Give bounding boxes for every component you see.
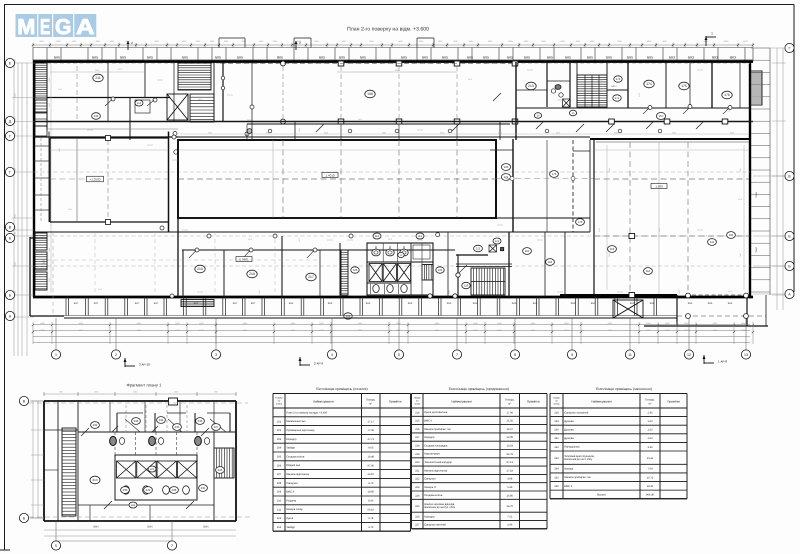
svg-text:2370: 2370: [258, 290, 261, 294]
svg-text:118: 118: [375, 235, 380, 238]
svg-text:3 АР-10: 3 АР-10: [139, 363, 150, 367]
svg-text:Номер: Номер: [553, 397, 561, 400]
svg-text:Експлікація приміщень (продовж: Експлікація приміщень (продовження): [449, 387, 509, 391]
svg-text:229: 229: [146, 488, 151, 492]
svg-text:14.67: 14.67: [507, 428, 514, 431]
svg-text:216: 216: [415, 428, 420, 431]
svg-text:2370: 2370: [728, 290, 732, 293]
svg-text:2370: 2370: [68, 208, 72, 211]
svg-text:8Н7: 8Н7: [74, 302, 79, 305]
svg-text:226: 226: [415, 515, 420, 518]
svg-text:2 АР-9: 2 АР-9: [314, 362, 324, 366]
svg-text:120: 120: [504, 165, 509, 169]
svg-text:210: 210: [197, 267, 203, 271]
svg-text:214: 214: [415, 411, 420, 414]
svg-text:5: 5: [55, 544, 57, 548]
svg-text:Всього: Всього: [597, 494, 606, 497]
svg-text:172: 172: [616, 77, 621, 81]
svg-text:8Н7: 8Н7: [233, 302, 238, 305]
svg-text:212: 212: [277, 517, 282, 520]
svg-text:119: 119: [418, 235, 423, 238]
svg-text:227: 227: [214, 425, 219, 429]
svg-text:157: 157: [658, 114, 663, 118]
svg-text:7: 7: [456, 353, 458, 357]
svg-text:234: 234: [554, 468, 559, 471]
svg-text:2370: 2370: [728, 108, 731, 112]
svg-text:6000: 6000: [14, 214, 17, 218]
svg-text:плану: плану: [554, 403, 561, 406]
svg-text:7.04: 7.04: [647, 468, 653, 471]
svg-text:м²: м²: [508, 402, 511, 405]
svg-text:2370: 2370: [58, 88, 62, 91]
svg-text:221: 221: [415, 469, 420, 472]
svg-text:3.96: 3.96: [507, 524, 513, 527]
svg-text:Найменування: Найменування: [591, 399, 612, 403]
svg-text:19.85: 19.85: [368, 491, 375, 494]
svg-text:8.95: 8.95: [368, 500, 374, 503]
svg-text:11: 11: [628, 353, 632, 357]
svg-text:1: 1: [711, 32, 713, 36]
svg-text:966.46: 966.46: [646, 494, 654, 497]
svg-text:Санвузол: Санвузол: [286, 482, 298, 485]
svg-text:213: 213: [528, 84, 534, 88]
svg-text:безпечних до наступ. обігу: безпечних до наступ. обігу: [424, 506, 456, 509]
svg-text:Г: Г: [789, 46, 791, 50]
svg-text:БК5: БК5: [442, 56, 448, 60]
svg-text:2370: 2370: [638, 93, 641, 97]
svg-text:E: E: [40, 15, 50, 39]
svg-text:Кімната прибирал. інв: Кімната прибирал. інв: [564, 476, 591, 479]
svg-text:235: 235: [554, 476, 559, 479]
svg-text:16.80: 16.80: [507, 494, 514, 497]
svg-text:174: 174: [646, 82, 652, 86]
svg-text:27.17: 27.17: [368, 420, 375, 423]
svg-text:27.72: 27.72: [368, 438, 375, 441]
svg-text:БК5: БК5: [54, 56, 60, 60]
svg-text:232: 232: [554, 446, 559, 449]
svg-text:27.18: 27.18: [507, 469, 514, 472]
svg-text:Душова: Душова: [564, 437, 574, 440]
svg-text:97.13: 97.13: [507, 461, 514, 464]
svg-text:Г: Г: [9, 134, 11, 138]
svg-text:115: 115: [525, 249, 530, 253]
svg-text:12.08: 12.08: [507, 436, 514, 439]
svg-text:Комора схову: Комора схову: [286, 508, 303, 511]
svg-text:План 2-го поверху на відм. +3.: План 2-го поверху на відм. +3.600: [347, 27, 429, 33]
svg-text:Накопичувач: Накопичувач: [424, 453, 440, 456]
svg-text:8Н3: 8Н3: [512, 302, 517, 305]
svg-text:ВК6: ВК6: [277, 56, 283, 60]
svg-text:Коридор: Коридор: [424, 436, 435, 439]
svg-text:ВМС 8: ВМС 8: [286, 491, 294, 494]
svg-text:6000: 6000: [324, 131, 328, 134]
svg-text:210: 210: [94, 114, 99, 118]
svg-text:БК5: БК5: [92, 56, 98, 60]
svg-text:Комора ІТ: Комора ІТ: [424, 486, 437, 489]
svg-text:8Н7: 8Н7: [94, 302, 99, 305]
svg-text:10.72: 10.72: [647, 476, 654, 479]
svg-text:БК5: БК5: [360, 56, 366, 60]
svg-text:БК5: БК5: [467, 56, 473, 60]
svg-text:12: 12: [687, 353, 691, 357]
svg-text:97.06: 97.06: [368, 464, 375, 467]
svg-text:224: 224: [131, 504, 136, 507]
svg-text:Тамбур: Тамбур: [286, 447, 295, 450]
svg-text:4: 4: [331, 353, 333, 357]
svg-text:227: 227: [415, 524, 420, 527]
svg-text:Площа,: Площа,: [645, 398, 654, 401]
svg-text:м²: м²: [649, 402, 652, 405]
svg-text:Номер: Номер: [276, 397, 284, 400]
svg-text:Сходова площадка: Сходова площадка: [424, 444, 448, 447]
svg-text:233: 233: [134, 419, 139, 423]
svg-text:207: 207: [277, 473, 282, 476]
svg-text:225: 225: [415, 505, 420, 508]
svg-text:2370: 2370: [598, 228, 601, 232]
svg-text:13.63: 13.63: [507, 444, 514, 447]
svg-text:113: 113: [610, 247, 615, 251]
svg-text:17.06: 17.06: [507, 411, 514, 414]
svg-text:236: 236: [198, 419, 203, 423]
svg-text:3: 3: [215, 353, 217, 357]
svg-text:Приміщення персоналу: Приміщення персоналу: [286, 429, 315, 432]
svg-text:Передушова: Передушова: [564, 446, 580, 449]
svg-text:8Н6: 8Н6: [708, 302, 713, 305]
svg-text:22.10: 22.10: [368, 473, 375, 476]
svg-text:8Н6: 8Н6: [366, 302, 371, 305]
svg-text:173: 173: [552, 172, 557, 176]
svg-text:8: 8: [514, 353, 516, 357]
svg-text:БК5: БК5: [627, 56, 633, 60]
svg-text:+1.3500: +1.3500: [90, 177, 101, 181]
svg-text:4.98: 4.98: [507, 478, 513, 481]
svg-text:Сходова клітка: Сходова клітка: [286, 455, 305, 458]
svg-text:92.79: 92.79: [507, 453, 514, 456]
svg-text:G: G: [55, 15, 71, 39]
svg-text:2370: 2370: [448, 290, 451, 294]
svg-text:8Н3: 8Н3: [571, 302, 576, 305]
svg-text:Примітки: Примітки: [527, 399, 540, 403]
svg-text:8Н7: 8Н7: [154, 302, 159, 305]
svg-text:126: 126: [464, 284, 469, 288]
svg-text:205: 205: [277, 456, 282, 459]
svg-text:Роздяча: Роздяча: [286, 499, 296, 502]
svg-text:6000: 6000: [14, 93, 17, 97]
svg-text:3.76: 3.76: [368, 526, 374, 529]
svg-text:226: 226: [218, 468, 223, 472]
svg-text:8Н3: 8Н3: [289, 302, 294, 305]
svg-text:Б.0601: Б.0601: [239, 257, 249, 261]
svg-text:БК5: БК5: [483, 56, 489, 60]
svg-text:ВМС 6: ВМС 6: [424, 419, 432, 422]
svg-text:111: 111: [710, 240, 715, 244]
svg-text:Обідній зал: Обідній зал: [286, 464, 300, 467]
svg-text:ВМС 3: ВМС 3: [564, 485, 572, 488]
svg-text:БК5: БК5: [547, 56, 553, 60]
svg-text:Душова: Душова: [564, 420, 574, 423]
svg-text:236: 236: [554, 485, 559, 488]
svg-text:План 2-го поверху на відм. +3.: План 2-го поверху на відм. +3.600: [286, 411, 328, 414]
svg-text:4.70: 4.70: [368, 482, 374, 485]
svg-text:1: 1: [55, 353, 57, 357]
svg-text:2370: 2370: [738, 198, 742, 201]
svg-text:2370: 2370: [58, 148, 61, 152]
svg-text:231: 231: [554, 437, 559, 440]
svg-text:222: 222: [415, 478, 420, 481]
svg-text:230: 230: [554, 429, 559, 432]
svg-text:7: 7: [171, 544, 173, 548]
svg-text:Санвузол жіночий: Санвузол жіночий: [424, 524, 446, 527]
svg-text:БК5: БК5: [339, 56, 345, 60]
svg-text:5: 5: [398, 353, 400, 357]
svg-text:8Н3: 8Н3: [630, 302, 635, 305]
svg-text:213: 213: [92, 478, 97, 482]
svg-text:7.02: 7.02: [507, 515, 513, 518]
svg-text:2370: 2370: [198, 98, 202, 101]
svg-text:6000: 6000: [672, 131, 676, 134]
svg-text:233: 233: [554, 457, 559, 460]
svg-text:Примітки: Примітки: [389, 399, 402, 403]
svg-text:Коридор: Коридор: [286, 438, 297, 441]
svg-text:116: 116: [548, 260, 553, 264]
svg-text:2370: 2370: [678, 290, 681, 294]
svg-text:1500: 1500: [48, 103, 51, 107]
svg-text:2370: 2370: [388, 238, 392, 241]
svg-text:Г: Г: [9, 170, 11, 174]
svg-text:БК5: БК5: [507, 56, 513, 60]
svg-text:2370: 2370: [658, 228, 661, 232]
svg-text:215: 215: [415, 420, 420, 423]
svg-text:плану: плану: [276, 403, 283, 406]
svg-text:БК5: БК5: [565, 56, 571, 60]
svg-text:224: 224: [415, 494, 420, 497]
svg-text:112: 112: [646, 269, 651, 273]
svg-text:Магазинний зал: Магазинний зал: [286, 420, 306, 423]
svg-text:2.96: 2.96: [647, 411, 653, 414]
svg-text:56.16: 56.16: [368, 508, 375, 511]
svg-text:БК5: БК5: [120, 56, 126, 60]
svg-text:2: 2: [115, 353, 117, 357]
svg-text:Найменування: Найменування: [313, 399, 334, 403]
svg-text:Кімната відпочинку: Кімната відпочинку: [424, 469, 448, 472]
svg-text:Номер: Номер: [414, 397, 422, 400]
svg-text:1.62: 1.62: [647, 437, 653, 440]
svg-text:122: 122: [476, 247, 481, 251]
svg-text:плану: плану: [414, 403, 421, 406]
svg-text:8Н6: 8Н6: [688, 302, 693, 305]
svg-text:230: 230: [123, 488, 128, 492]
svg-text:ВК17: ВК17: [611, 85, 617, 88]
svg-text:9: 9: [571, 353, 573, 357]
svg-text:Кімната відпочинку: Кімната відпочинку: [286, 473, 310, 476]
svg-text:9.65: 9.65: [368, 447, 374, 450]
svg-text:217: 217: [308, 275, 314, 279]
svg-text:14.70: 14.70: [507, 505, 514, 508]
svg-text:1500: 1500: [48, 278, 51, 282]
svg-text:8Н3: 8Н3: [533, 302, 538, 305]
svg-text:2370: 2370: [298, 128, 301, 132]
svg-text:Пом5: Пом5: [755, 191, 758, 198]
svg-text:БК5: БК5: [422, 56, 428, 60]
svg-text:1.62: 1.62: [647, 420, 653, 423]
svg-text:Санвузол: Санвузол: [424, 478, 436, 481]
svg-text:6000: 6000: [266, 131, 270, 134]
svg-text:Коридор: Коридор: [424, 515, 435, 518]
svg-text:225: 225: [150, 468, 155, 471]
svg-text:Тамбур: Тамбур: [286, 526, 295, 529]
svg-text:2370: 2370: [468, 78, 472, 81]
svg-text:Комора: Комора: [564, 468, 574, 471]
svg-text:БК5: БК5: [587, 56, 593, 60]
svg-text:234: 234: [159, 418, 164, 422]
svg-text:8Н3: 8Н3: [473, 302, 478, 305]
svg-text:220: 220: [415, 461, 420, 464]
svg-text:2370: 2370: [298, 238, 301, 242]
svg-text:Пом2: Пом2: [755, 246, 758, 253]
svg-text:1 АР-8: 1 АР-8: [718, 360, 728, 364]
svg-text:БК5: БК5: [606, 56, 612, 60]
svg-text:6000: 6000: [498, 131, 502, 134]
svg-text:202: 202: [277, 429, 282, 432]
svg-text:2370: 2370: [248, 238, 252, 241]
svg-text:228: 228: [172, 488, 177, 492]
svg-text:231: 231: [201, 486, 206, 490]
svg-text:170: 170: [578, 220, 583, 224]
svg-text:211: 211: [277, 508, 282, 511]
svg-text:176: 176: [724, 93, 730, 97]
svg-text:171: 171: [615, 96, 620, 100]
svg-text:219: 219: [249, 272, 255, 276]
svg-text:Кухня доготівельна: Кухня доготівельна: [424, 411, 448, 414]
svg-text:Кімната прибирал. інв: Кімната прибирал. інв: [424, 428, 451, 431]
svg-text:229: 229: [554, 420, 559, 423]
svg-text:6000: 6000: [382, 131, 386, 134]
svg-text:109: 109: [367, 92, 373, 96]
svg-text:6000: 6000: [556, 131, 560, 134]
svg-text:1.4010: 1.4010: [325, 173, 335, 177]
svg-text:5.43: 5.43: [507, 486, 513, 489]
svg-text:1500: 1500: [48, 248, 51, 252]
svg-text:125: 125: [438, 268, 443, 272]
svg-text:203: 203: [277, 438, 282, 441]
svg-text:209: 209: [277, 491, 282, 494]
svg-text:БК5: БК5: [237, 56, 243, 60]
svg-text:БК5: БК5: [401, 56, 407, 60]
svg-text:Душова: Душова: [564, 429, 574, 432]
svg-text:Кухня: Кухня: [286, 517, 294, 520]
svg-text:Сходова клітка: Сходова клітка: [424, 494, 443, 497]
svg-text:2370: 2370: [118, 68, 122, 71]
svg-text:13: 13: [744, 353, 748, 357]
svg-text:Площа,: Площа,: [505, 398, 514, 401]
svg-text:Експлікація приміщень (закінче: Експлікація приміщень (закінчення): [596, 387, 652, 391]
svg-text:2370: 2370: [358, 118, 362, 121]
svg-text:212: 212: [137, 102, 142, 105]
svg-text:204: 204: [277, 447, 282, 450]
svg-text:8Н6: 8Н6: [728, 302, 733, 305]
svg-text:A: A: [76, 15, 95, 39]
svg-text:223: 223: [415, 486, 420, 489]
svg-text:8Н3: 8Н3: [447, 302, 452, 305]
svg-text:21.92: 21.92: [507, 420, 514, 423]
svg-text:БК5: БК5: [647, 56, 653, 60]
svg-text:211: 211: [95, 76, 101, 80]
svg-text:8Н3: 8Н3: [408, 302, 413, 305]
svg-text:175: 175: [681, 84, 687, 88]
svg-text:8Н6: 8Н6: [650, 302, 655, 305]
svg-text:ВМ6: ВМ6: [93, 526, 99, 529]
svg-text:123: 123: [353, 268, 358, 272]
svg-text:БК5: БК5: [319, 56, 325, 60]
svg-text:16.48: 16.48: [368, 456, 375, 459]
svg-text:210: 210: [277, 500, 282, 503]
svg-text:123: 123: [495, 240, 500, 243]
svg-text:Фрагмент плану 1: Фрагмент плану 1: [127, 383, 163, 388]
svg-text:201: 201: [277, 420, 282, 423]
svg-text:228: 228: [554, 411, 559, 414]
svg-text:БК5: БК5: [215, 56, 221, 60]
svg-text:218: 218: [415, 444, 420, 447]
svg-text:1500: 1500: [48, 78, 51, 82]
svg-text:232: 232: [93, 423, 98, 427]
svg-text:6000: 6000: [730, 131, 734, 134]
svg-text:235: 235: [175, 425, 180, 429]
svg-text:6000: 6000: [440, 131, 444, 134]
svg-text:±7.06: ±7.06: [368, 429, 375, 432]
svg-text:БК7: БК7: [43, 259, 46, 264]
svg-text:БК5: БК5: [147, 56, 153, 60]
svg-text:217: 217: [415, 436, 420, 439]
svg-text:18.35: 18.35: [647, 485, 654, 488]
svg-text:Технологічний коридор: Технологічний коридор: [424, 461, 452, 464]
svg-text:15.41: 15.41: [647, 457, 654, 460]
svg-text:Примітки: Примітки: [667, 399, 680, 403]
svg-text:110: 110: [729, 233, 734, 237]
svg-text:208: 208: [277, 482, 282, 485]
svg-text:213: 213: [277, 526, 282, 529]
svg-text:ВМ6: ВМ6: [147, 526, 153, 529]
svg-text:ВК3: ВК3: [730, 56, 736, 60]
svg-text:1.800: 1.800: [655, 184, 663, 188]
svg-text:безпечний до наст. обігу: безпечний до наст. обігу: [564, 458, 593, 461]
svg-text:6000: 6000: [14, 262, 17, 266]
svg-text:6.78: 6.78: [368, 517, 374, 520]
svg-text:1.62: 1.62: [647, 429, 653, 432]
svg-text:Найменування: Найменування: [451, 399, 472, 403]
svg-text:6000: 6000: [208, 131, 212, 134]
svg-text:M: M: [17, 15, 35, 39]
svg-text:Експлікація приміщень (початок: Експлікація приміщень (початок): [316, 387, 367, 391]
svg-text:3.46: 3.46: [647, 446, 653, 449]
svg-text:БК3: БК3: [669, 56, 675, 60]
svg-text:6000: 6000: [614, 131, 618, 134]
svg-text:ВК3: ВК3: [712, 56, 718, 60]
svg-text:БК5: БК5: [524, 56, 530, 60]
svg-text:БК5: БК5: [182, 56, 188, 60]
svg-text:8Н3: 8Н3: [591, 302, 596, 305]
svg-text:м²: м²: [369, 402, 372, 405]
svg-text:219: 219: [415, 453, 420, 456]
svg-text:ВМ6: ВМ6: [203, 526, 209, 529]
svg-text:206: 206: [277, 464, 282, 467]
svg-text:БК3: БК3: [688, 56, 694, 60]
svg-text:Площа,: Площа,: [366, 398, 375, 401]
svg-text:8Н7: 8Н7: [135, 302, 140, 305]
svg-text:8Н7: 8Н7: [251, 302, 256, 305]
svg-text:8Н3: 8Н3: [328, 302, 333, 305]
svg-text:2370: 2370: [98, 288, 102, 291]
svg-text:Санвузол чоловічий: Санвузол чоловічий: [564, 411, 589, 414]
